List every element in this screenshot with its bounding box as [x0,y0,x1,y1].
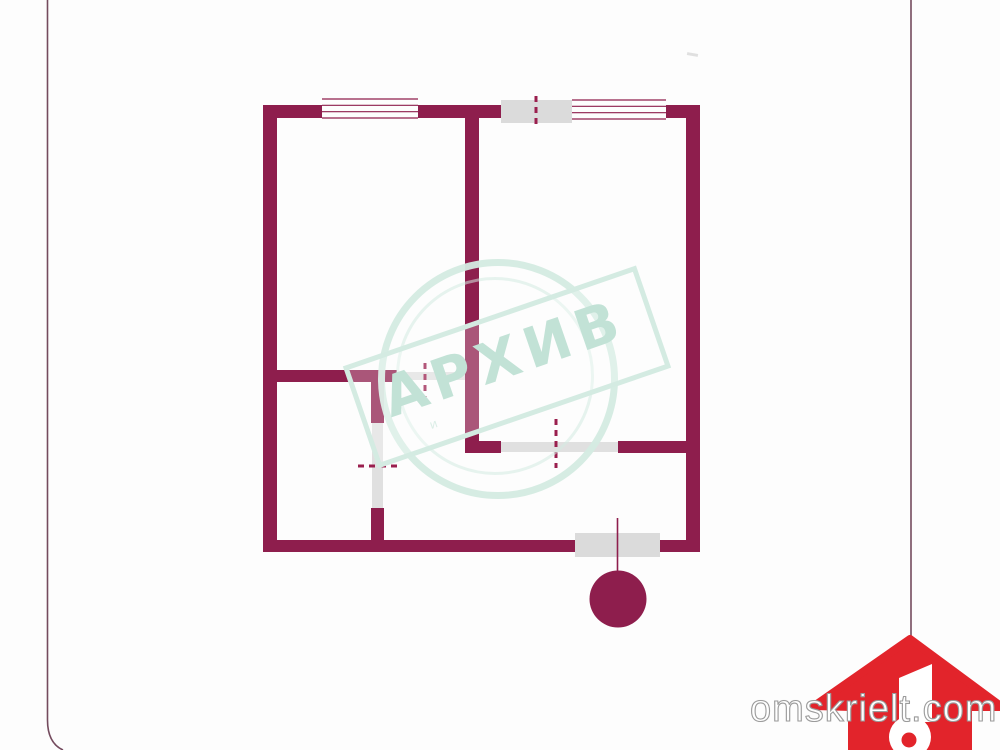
page-border [0,0,1000,750]
page-border-left [48,0,64,750]
floor-plan-image: { "colors": { "wall": "#8E1E4D", "dash":… [0,0,1000,750]
